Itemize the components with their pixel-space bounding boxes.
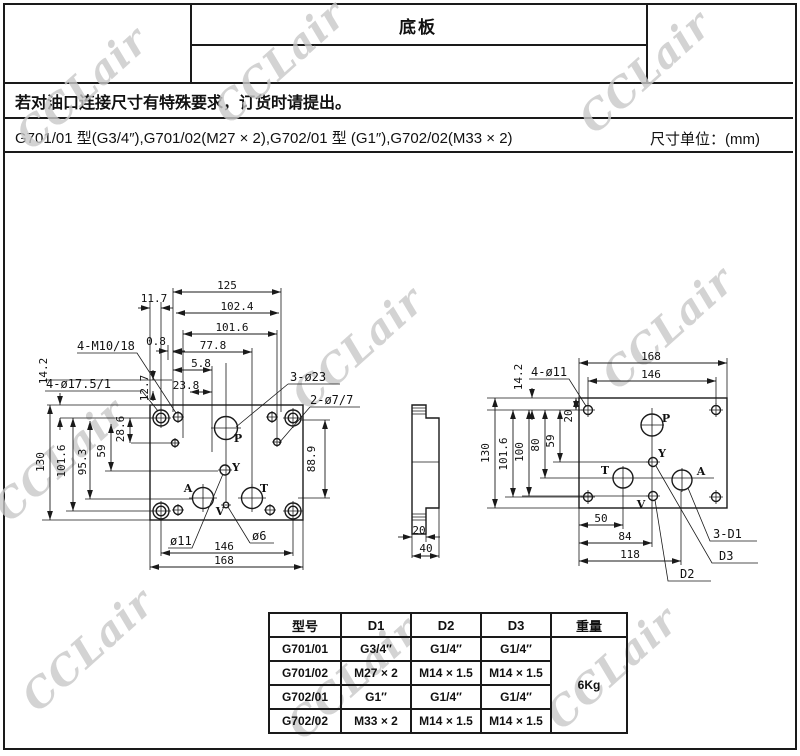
port-a-bottom: A xyxy=(696,465,706,478)
dim-77-8: 77.8 xyxy=(200,339,227,352)
port-y-bottom: Y xyxy=(657,447,666,460)
cell-d1: M27 × 2 xyxy=(341,661,411,685)
cell-d3: M14 × 1.5 xyxy=(481,709,551,733)
cell-d1: M33 × 2 xyxy=(341,709,411,733)
cell-d2: M14 × 1.5 xyxy=(411,709,481,733)
dim-125: 125 xyxy=(217,279,237,292)
dim-59: 59 xyxy=(95,444,108,457)
cell-d3: M14 × 1.5 xyxy=(481,661,551,685)
label-4-o17-5: 4-ø17.5/1 xyxy=(46,377,111,391)
col-weight: 重量 xyxy=(551,613,627,637)
cell-d3: G1/4″ xyxy=(481,637,551,661)
col-d1: D1 xyxy=(341,613,411,637)
dim-101-6-top: 101.6 xyxy=(215,321,248,334)
dim-100-bottom: 100 xyxy=(513,442,526,462)
cell-d1: G3/4″ xyxy=(341,637,411,661)
dim-101-6-bottom: 101.6 xyxy=(497,437,510,470)
bottom-view: 168 146 4-ø11 14.2 20 59 80 100 101.6 13… xyxy=(479,350,758,581)
label-2-o7: 2-ø7/7 xyxy=(310,393,353,407)
port-p-bottom: P xyxy=(662,412,670,425)
dim-84: 84 xyxy=(618,530,632,543)
dim-50: 50 xyxy=(594,512,607,525)
label-3-d1: 3-D1 xyxy=(713,527,742,541)
cell-model: G701/01 xyxy=(269,637,341,661)
cell-model: G702/02 xyxy=(269,709,341,733)
port-a: A xyxy=(183,482,193,495)
dim-130-bottom: 130 xyxy=(479,443,492,463)
dim-102-4: 102.4 xyxy=(220,300,253,313)
label-d2: D2 xyxy=(680,567,694,581)
dim-95-3: 95.3 xyxy=(76,449,89,476)
port-t: T xyxy=(260,482,269,495)
port-v-bottom: V xyxy=(636,498,646,511)
dim-0-8: 0.8 xyxy=(146,335,166,348)
dim-11-7: 11.7 xyxy=(141,292,168,305)
side-view: 20 40 xyxy=(398,405,440,558)
dim-28-6: 28.6 xyxy=(114,416,127,443)
port-v: V xyxy=(215,505,225,518)
cell-d2: G1/4″ xyxy=(411,685,481,709)
table-row: G701/01 G3/4″ G1/4″ G1/4″ 6Kg xyxy=(269,637,627,661)
dim-130: 130 xyxy=(34,452,47,472)
dim-5-8: 5.8 xyxy=(191,357,211,370)
port-p: P xyxy=(234,432,242,445)
front-view: 125 102.4 101.6 77.8 5.8 23.8 0.8 11.7 4… xyxy=(34,279,360,570)
dim-88-9: 88.9 xyxy=(305,446,318,473)
dim-20-bottom: 20 xyxy=(562,409,575,422)
dim-101-6-left: 101.6 xyxy=(55,444,68,477)
dim-80-bottom: 80 xyxy=(529,438,542,451)
label-o11: ø11 xyxy=(170,534,192,548)
col-model: 型号 xyxy=(269,613,341,637)
label-4-o11: 4-ø11 xyxy=(531,365,567,379)
cell-model: G701/02 xyxy=(269,661,341,685)
cell-d2: G1/4″ xyxy=(411,637,481,661)
dim-12-7: 12.7 xyxy=(138,375,151,402)
spec-table: 型号 D1 D2 D3 重量 G701/01 G3/4″ G1/4″ G1/4″… xyxy=(268,612,628,734)
dim-118: 118 xyxy=(620,548,640,561)
cell-d2: M14 × 1.5 xyxy=(411,661,481,685)
dim-40-side: 40 xyxy=(419,542,432,555)
label-o6: ø6 xyxy=(252,529,266,543)
catalog-page: CCLair CCLair CCLair CCLair CCLair CCLai… xyxy=(0,0,800,756)
dim-59-bottom: 59 xyxy=(544,434,557,447)
spec-header-row: 型号 D1 D2 D3 重量 xyxy=(269,613,627,637)
col-d2: D2 xyxy=(411,613,481,637)
dim-146: 146 xyxy=(214,540,234,553)
port-t-bottom: T xyxy=(601,464,610,477)
cell-d3: G1/4″ xyxy=(481,685,551,709)
dim-20-side: 20 xyxy=(412,524,425,537)
dim-168: 168 xyxy=(214,554,234,567)
dim-168-bottom: 168 xyxy=(641,350,661,363)
dim-14-2-bottom: 14.2 xyxy=(512,364,525,391)
cell-d1: G1″ xyxy=(341,685,411,709)
label-3-o23: 3-ø23 xyxy=(290,370,326,384)
dim-23-8: 23.8 xyxy=(173,379,200,392)
col-d3: D3 xyxy=(481,613,551,637)
label-d3: D3 xyxy=(719,549,733,563)
dim-146-bottom: 146 xyxy=(641,368,661,381)
label-4-m10: 4-M10/18 xyxy=(77,339,135,353)
dim-14-2: 14.2 xyxy=(37,358,50,385)
cell-model: G702/01 xyxy=(269,685,341,709)
port-y: Y xyxy=(231,461,240,474)
cell-weight: 6Kg xyxy=(551,637,627,733)
